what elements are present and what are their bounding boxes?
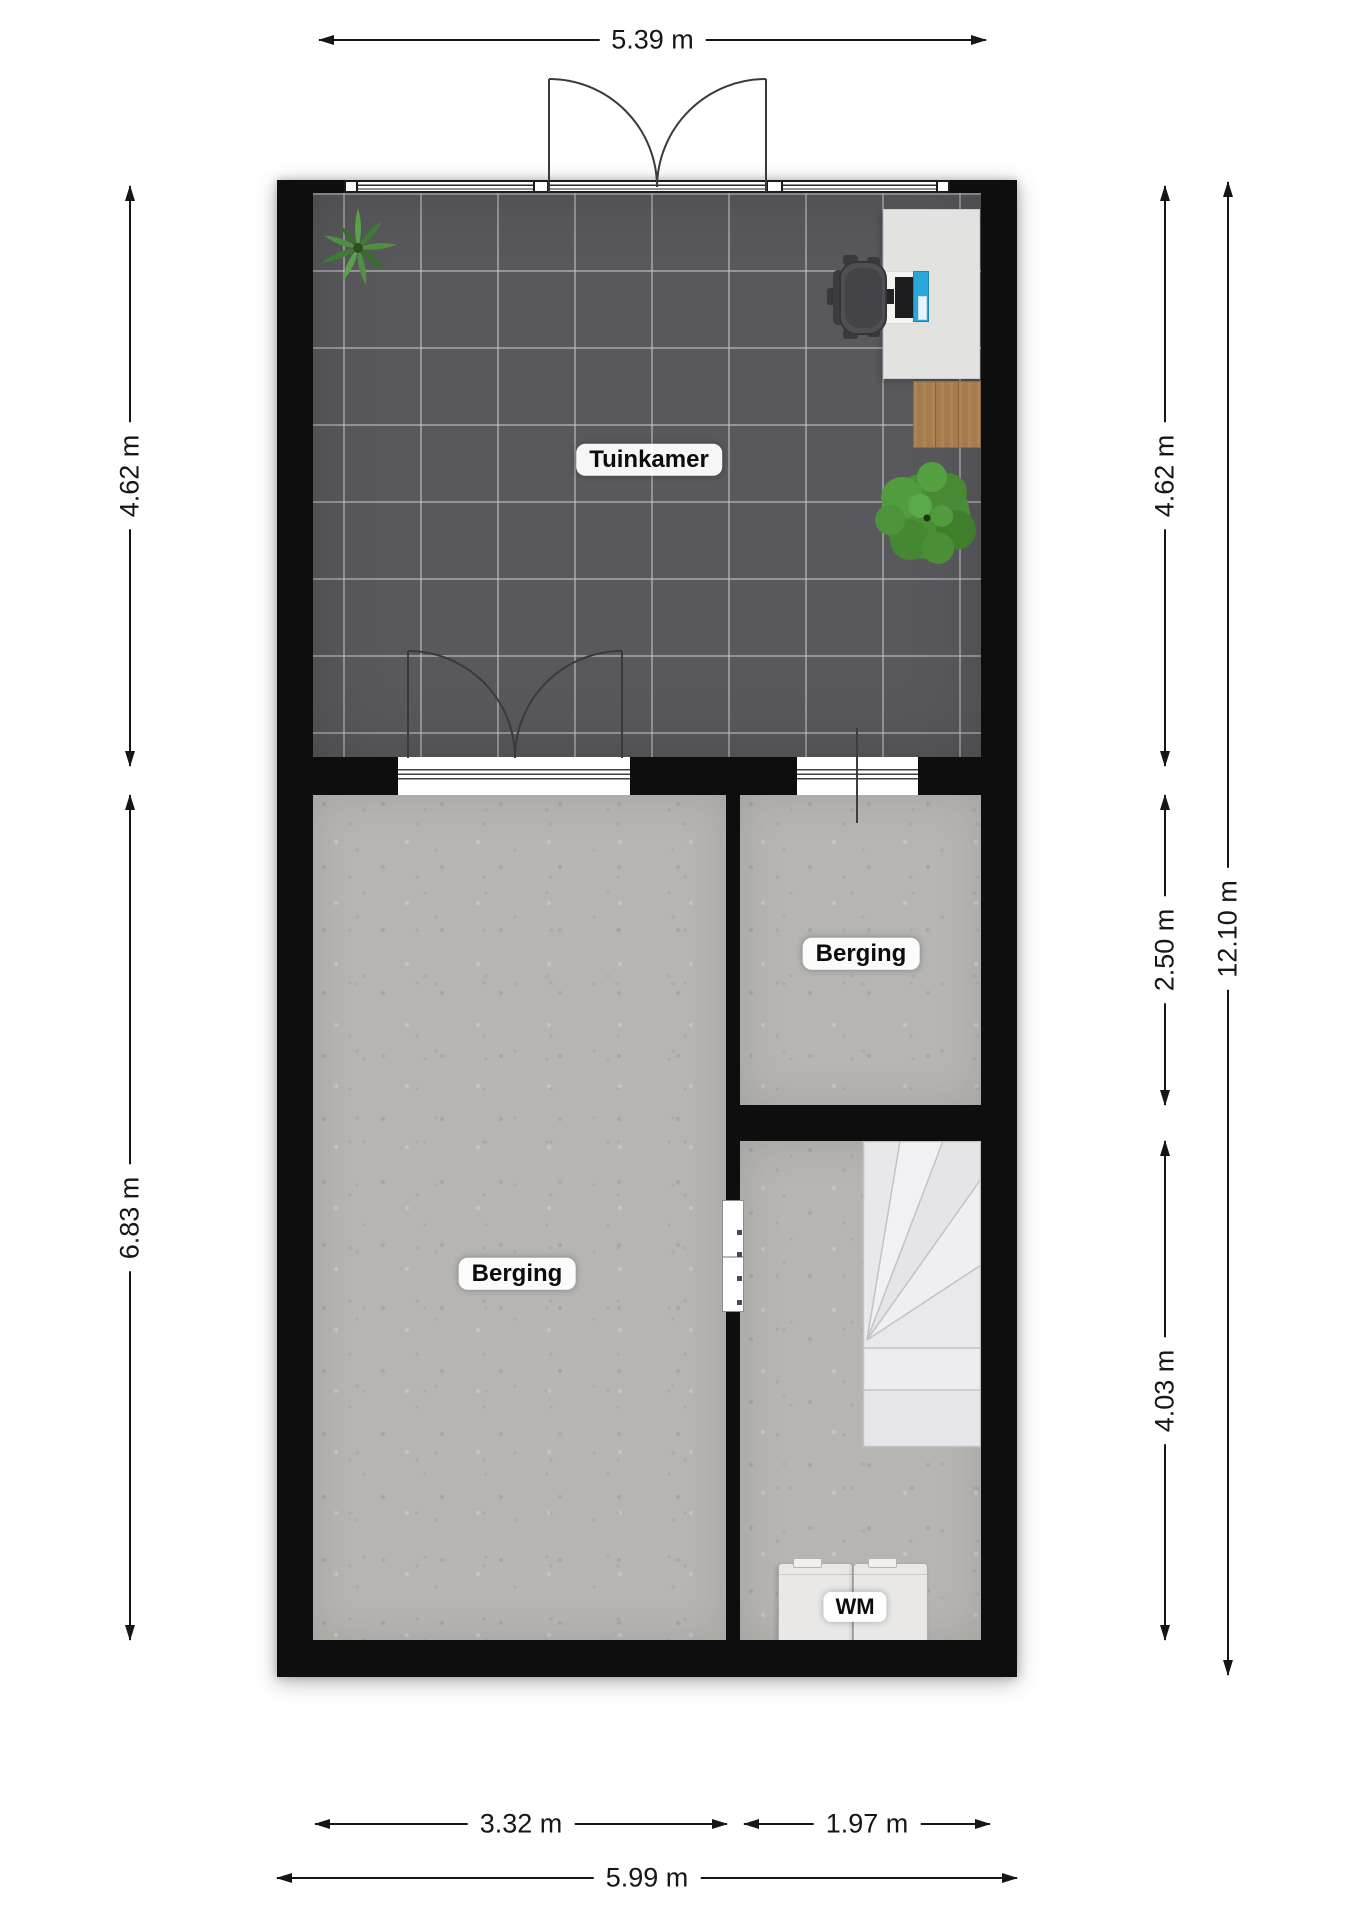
desk [883,209,980,379]
pc-tower-icon [913,271,929,322]
arrow-down-icon [125,1625,135,1641]
arrow-down-icon [1160,1090,1170,1106]
exterior-wall-right [981,180,1017,1677]
dimension-value: 4.03 m [1149,1337,1182,1444]
room-label-berging-right: Berging [803,938,920,970]
arrow-left-icon [314,1819,330,1829]
arrow-up-icon [1160,794,1170,810]
room-label-berging-left: Berging [459,1258,576,1290]
door-hinge-tick [737,1300,742,1305]
dimension-bottom-total: 5.99 m [277,1872,1017,1884]
washing-machine-seam [854,1574,927,1575]
arrow-right-icon [971,35,987,45]
wood-sideboard [913,381,981,448]
dimension-value: 2.50 m [1149,897,1182,1004]
arrow-up-icon [1223,181,1233,197]
keyboard-icon [895,277,913,318]
dimension-value: 6.83 m [114,1164,147,1271]
dimension-top-width: 5.39 m [319,34,986,46]
french-doors-exterior [540,70,780,200]
interior-wall-divider-lower [726,1312,740,1640]
agave-plant-icon [315,205,401,291]
dimension-right-top: 4.62 m [1159,186,1171,766]
dimension-value: 5.39 m [599,24,706,57]
dimension-value: 3.32 m [468,1808,575,1841]
room-label-wm: WM [823,1592,886,1622]
pc-tower-front [918,296,927,320]
dimension-right-bottom: 4.03 m [1159,1141,1171,1640]
arrow-right-icon [712,1819,728,1829]
dimension-right-middle: 2.50 m [1159,795,1171,1105]
room-label-tuinkamer: Tuinkamer [576,444,722,476]
dimension-value: 12.10 m [1212,868,1245,990]
interior-wall-cross [740,1105,981,1141]
dimension-value: 1.97 m [814,1808,921,1841]
arrow-up-icon [125,185,135,201]
dimension-left-bottom: 6.83 m [124,795,136,1640]
arrow-left-icon [276,1873,292,1883]
arrow-right-icon [975,1819,991,1829]
dimension-right-total: 12.10 m [1222,182,1234,1675]
dimension-value: 5.99 m [594,1862,701,1895]
arrow-left-icon [743,1819,759,1829]
exterior-wall-top-right [950,180,1017,193]
dimension-value: 4.62 m [114,423,147,530]
arrow-up-icon [1160,1140,1170,1156]
washing-machine-handle [793,1558,822,1568]
french-doors-interior [395,645,635,800]
exterior-wall-left [277,180,313,1677]
floor-plan-page: { "dimensions": { "top_width": "5.39 m",… [0,0,1358,1920]
dimension-bottom-left: 3.32 m [315,1818,727,1830]
arrow-down-icon [1160,751,1170,767]
arrow-down-icon [1223,1660,1233,1676]
door-hinge-tick [737,1252,742,1257]
arrow-down-icon [125,751,135,767]
arrow-down-icon [1160,1625,1170,1641]
bush-plant-icon [872,458,982,574]
exterior-wall-bottom [277,1640,1017,1677]
washing-machine-seam [779,1574,852,1575]
dimension-bottom-middle: 1.97 m [744,1818,990,1830]
arrow-up-icon [125,794,135,810]
arrow-left-icon [318,35,334,45]
window-mullion [936,180,950,193]
window-section-line [856,728,858,823]
window-mullion [344,180,358,193]
arrow-right-icon [1002,1873,1018,1883]
arrow-up-icon [1160,185,1170,201]
office-chair-icon [827,251,890,343]
interior-wall-divider-upper [726,795,740,1200]
dimension-value: 4.62 m [1149,423,1182,530]
exterior-wall-top-left [277,180,344,193]
door-hinge-tick [737,1230,742,1235]
washing-machine-handle [868,1558,897,1568]
berging-left-floor [313,795,727,1640]
dimension-left-top: 4.62 m [124,186,136,766]
door-hinge-tick [737,1276,742,1281]
staircase-icon [863,1141,981,1447]
